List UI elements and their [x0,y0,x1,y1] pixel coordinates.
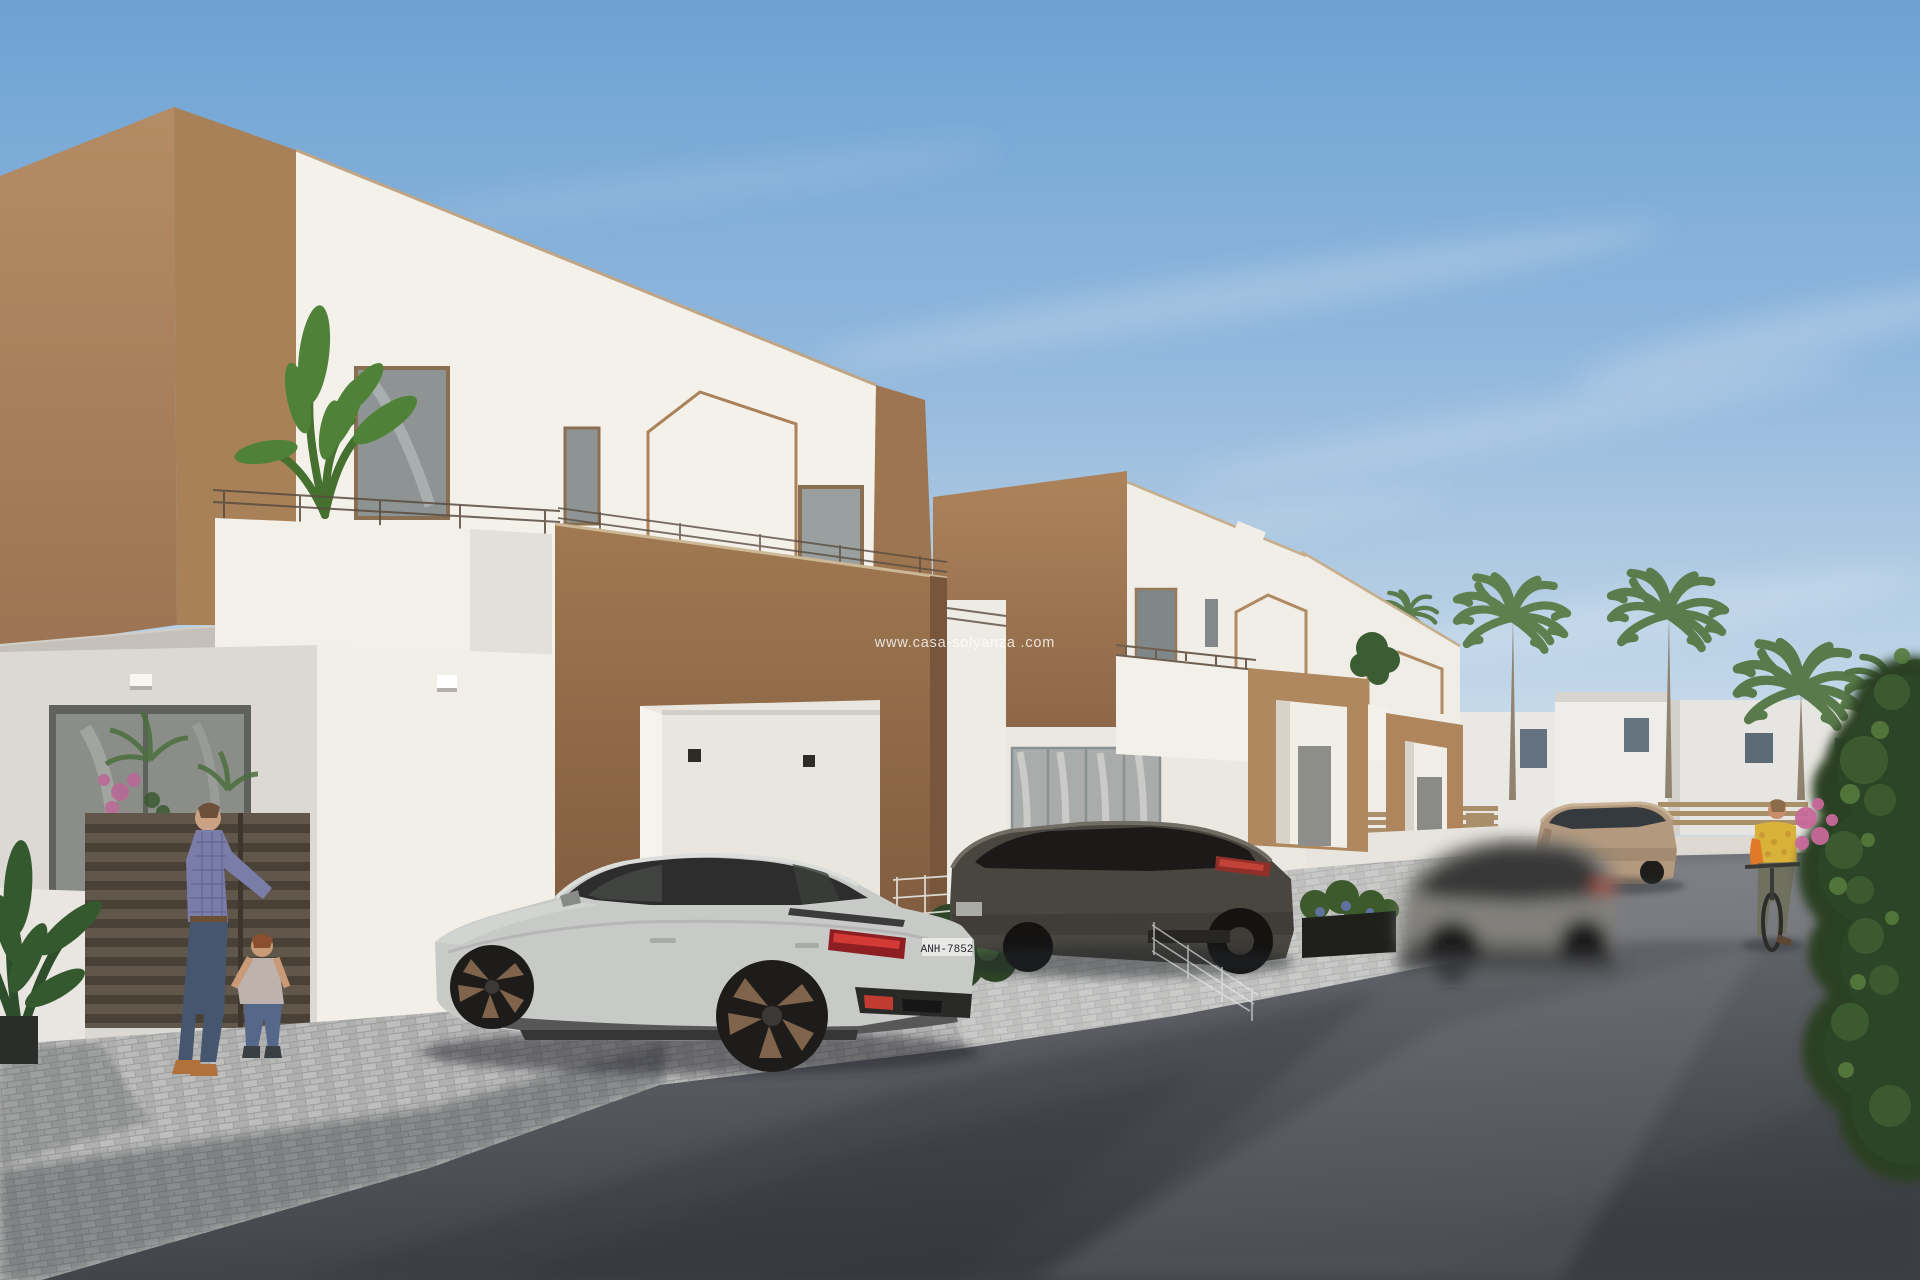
svg-text:ANH-7852: ANH-7852 [921,944,974,956]
svg-text:www.casa-solyanza .com: www.casa-solyanza .com [874,635,1055,651]
